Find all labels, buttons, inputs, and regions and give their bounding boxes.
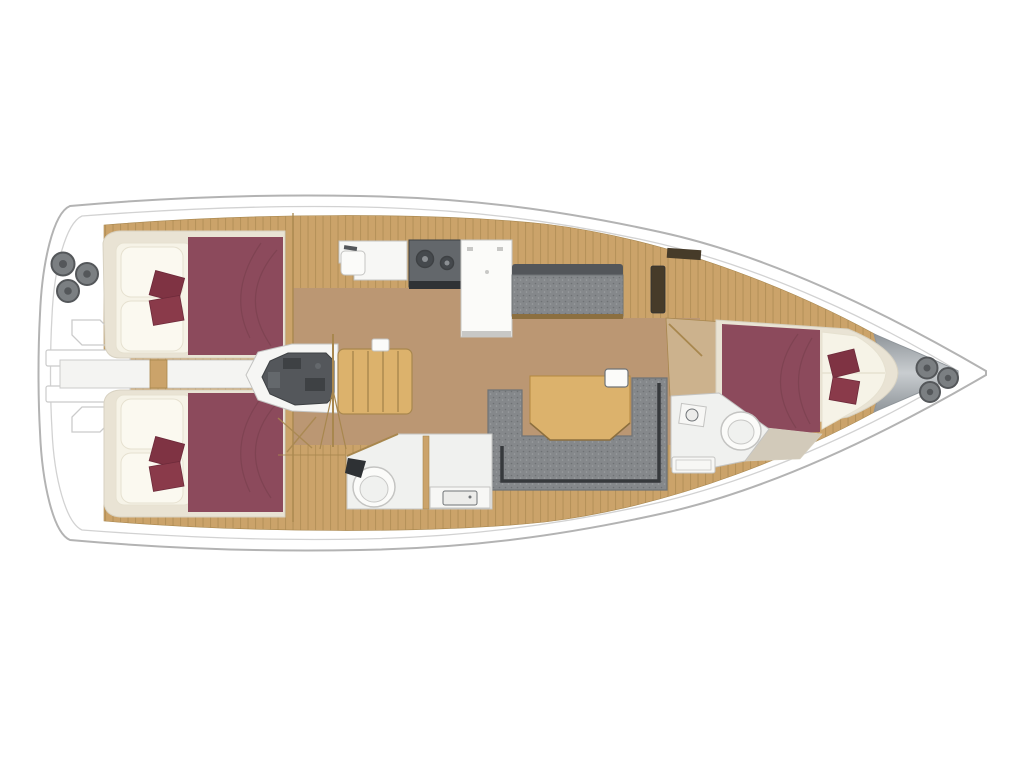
throw-cushion [829, 377, 860, 404]
table-sink-insert [605, 369, 628, 387]
companionway-stairs [338, 349, 412, 414]
passage-wood-step [150, 360, 167, 388]
locker-slot [651, 266, 665, 313]
washbasin [443, 491, 477, 505]
hinge [497, 247, 503, 251]
duvet [188, 237, 283, 355]
winch-hub [64, 287, 72, 295]
refrigerator [461, 240, 512, 337]
engine-detail [305, 378, 325, 391]
aft-cabin-port [104, 390, 285, 517]
burner-center [422, 256, 428, 262]
toilet-bowl [360, 476, 388, 502]
washbasin [686, 409, 698, 421]
kick-plate [462, 331, 511, 337]
basin-drain [469, 496, 472, 499]
head-divider [423, 436, 429, 509]
handle-dot [485, 270, 489, 274]
small-hatch [372, 339, 389, 351]
floor-plan-canvas [0, 0, 1024, 768]
engine-detail [315, 363, 321, 369]
yacht-floor-plan [0, 0, 1024, 768]
aft-cabin-starboard [103, 231, 285, 358]
settee-cushion [512, 275, 623, 316]
galley-sink [341, 251, 365, 275]
stove-front [409, 281, 461, 289]
winch-hub [83, 270, 91, 278]
shower-bench [672, 457, 715, 473]
throw-cushion [149, 461, 184, 491]
engine-detail [268, 372, 280, 388]
settee-fiddle [512, 314, 623, 319]
windlass-hub [945, 375, 951, 381]
forward-cabin-entry [666, 318, 723, 398]
stove [409, 240, 461, 289]
throw-cushion [149, 295, 184, 325]
engine-detail [283, 358, 301, 369]
refrigerator-body [461, 240, 512, 337]
hinge [467, 247, 473, 251]
windlass-hub [924, 365, 931, 372]
toilet-bowl [728, 420, 754, 444]
windlass-hub [927, 389, 933, 395]
starboard-settee [512, 264, 623, 319]
burner-center [445, 261, 450, 266]
winch-hub [59, 260, 67, 268]
